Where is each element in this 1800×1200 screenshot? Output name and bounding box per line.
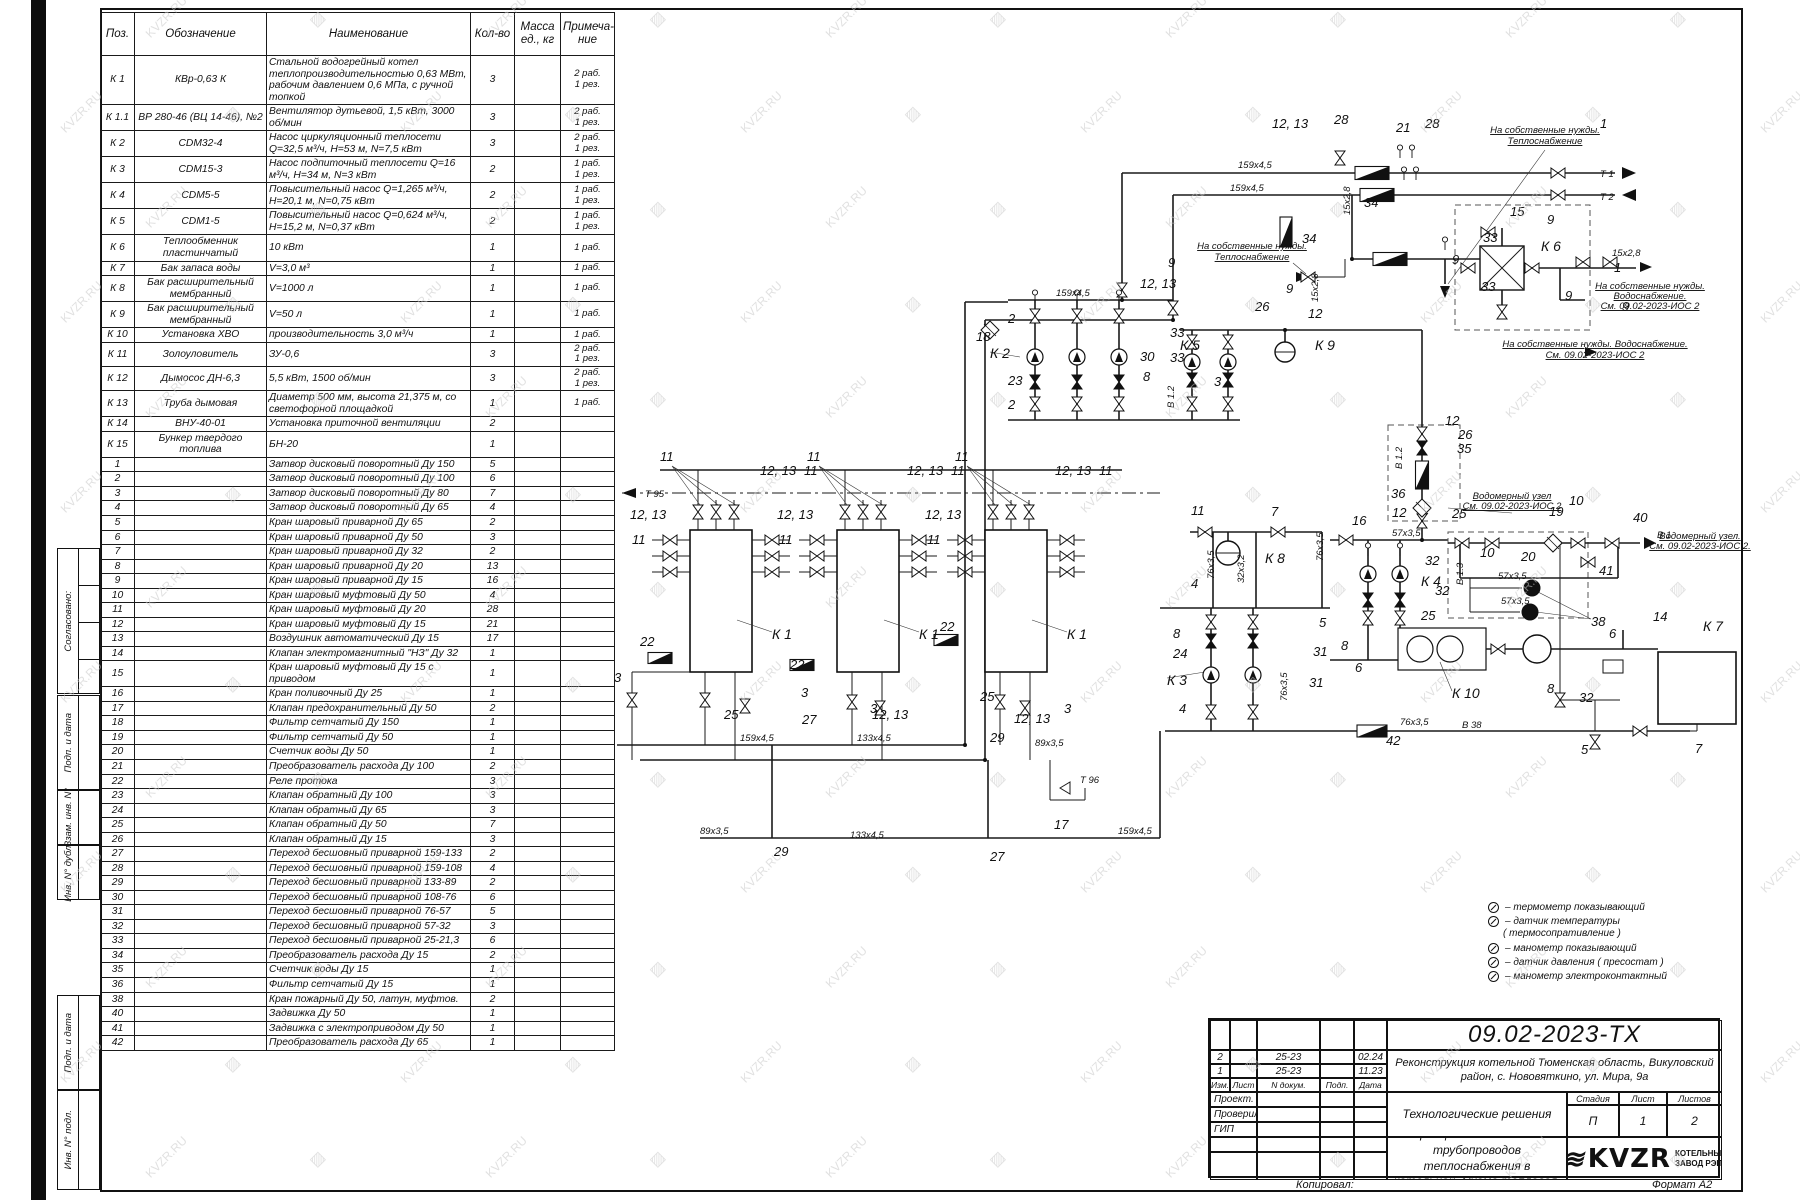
tb-hdr-list: Лист xyxy=(1230,1078,1257,1092)
valve-icon xyxy=(1491,644,1505,654)
flow-transducer-icon xyxy=(1357,725,1387,737)
flow-transducer-icon xyxy=(1416,461,1429,489)
schematic-label: 41 xyxy=(1599,563,1613,578)
schematic-label: 12, 13 xyxy=(760,463,797,478)
tb-rev1-date: 11.23 xyxy=(1354,1064,1387,1078)
tb-role-gip-name[interactable] xyxy=(1257,1122,1320,1137)
valve-icon xyxy=(1030,309,1040,323)
valve-icon xyxy=(1060,551,1074,561)
valve-icon xyxy=(810,551,824,561)
schematic-label: 12 xyxy=(1308,306,1323,321)
legend-item: – манометр показывающий xyxy=(1488,941,1667,955)
schematic-label: 8 xyxy=(1143,369,1151,384)
schematic-label: См. 09.02-2023-ИОС 2 xyxy=(1463,501,1563,512)
pump-icon xyxy=(1220,354,1236,370)
tb-role-project: Проект. xyxy=(1210,1092,1257,1107)
valve-icon xyxy=(1461,263,1475,273)
schematic-label: 7 xyxy=(1271,504,1279,519)
schematic-label: 27 xyxy=(989,849,1005,864)
schematic-label: К 8 xyxy=(1265,550,1285,566)
valve-icon xyxy=(1339,535,1353,545)
tb-role-checked-name[interactable] xyxy=(1257,1107,1320,1122)
schematic-label: Т 95 xyxy=(645,489,665,500)
air-vent-icon xyxy=(1365,543,1370,556)
schematic-label: 11 xyxy=(951,463,965,478)
schematic-label: 33 xyxy=(1483,230,1498,245)
water-tank-k7 xyxy=(1603,652,1736,724)
schematic-label: См. 09.02-2023-ИОС 2 xyxy=(1601,301,1701,312)
schematic-label: 33 xyxy=(1170,350,1185,365)
schematic-label: 12, 13 xyxy=(1055,463,1092,478)
schematic-label: 35 xyxy=(1457,441,1472,456)
schematic-label: 6 xyxy=(1355,660,1363,675)
schematic-label: К 1 xyxy=(919,626,939,642)
valve-icon xyxy=(1571,538,1585,548)
valve-icon xyxy=(663,567,677,577)
legend-text: – манометр электроконтактный xyxy=(1505,971,1667,982)
schematic-label: 25 xyxy=(1451,506,1467,521)
valve-icon xyxy=(663,551,677,561)
schematic-label: 15x2,8 xyxy=(1310,273,1321,302)
title-block: 2 25-23 02.24 1 25-23 11.23 Изм. Лист N … xyxy=(1208,1018,1720,1178)
electrocontact-manometer-icon xyxy=(1488,971,1499,982)
legend-item: – датчик температуры xyxy=(1488,914,1667,928)
tb-hdr-sign: Подп. xyxy=(1320,1078,1354,1092)
valve-icon xyxy=(1551,168,1565,178)
legend-item: – манометр электроконтактный xyxy=(1488,969,1667,983)
valve-icon xyxy=(1395,611,1405,625)
schematic-label: 24 xyxy=(1172,646,1187,661)
valve-icon xyxy=(912,551,926,561)
air-vent-icon xyxy=(1442,237,1447,250)
schematic-label: 25 xyxy=(979,689,995,704)
air-vent-icon xyxy=(1409,145,1414,158)
schematic-label: 33 xyxy=(1481,279,1496,294)
legend-text-wrap: ( термосопративление ) xyxy=(1503,928,1667,941)
valve-icon xyxy=(1363,593,1373,607)
schematic-label: 5 xyxy=(1319,615,1327,630)
tb-empty xyxy=(1210,1020,1230,1050)
schematic-label: 36 xyxy=(1391,486,1406,501)
tb-rev2-list xyxy=(1230,1050,1257,1064)
schematic-label: 57x3,5 xyxy=(1498,571,1527,582)
tb-sheets-label: Листов xyxy=(1667,1092,1722,1105)
tb-role-gip-sign[interactable] xyxy=(1320,1122,1354,1137)
schematic-label: Т 96 xyxy=(1080,775,1100,786)
schematic-label: 11 xyxy=(804,463,818,478)
schematic-label: 12, 13 xyxy=(777,507,814,522)
schematic-label: В 1.3 xyxy=(1455,562,1466,585)
schematic-label: 22 xyxy=(789,657,805,672)
kvzr-company-name: КОТЕЛЬНЫЙ ЗАВОД РЭП xyxy=(1675,1149,1722,1167)
boiler-k1-group xyxy=(690,530,1047,672)
valve-icon xyxy=(693,505,703,519)
format-label: Формат А2 xyxy=(1652,1179,1712,1191)
tb-doc-number: 09.02-2023-ТХ xyxy=(1387,1020,1722,1050)
valve-icon xyxy=(1455,538,1469,548)
tb-rev2-sign[interactable] xyxy=(1320,1050,1354,1064)
schematic-label: 8 xyxy=(1173,626,1181,641)
valve-icon xyxy=(1206,634,1216,648)
schematic-label: 12, 13 xyxy=(1014,711,1051,726)
valve-icon xyxy=(1168,301,1178,315)
schematic-label: 18 xyxy=(976,329,991,344)
schematic-label: 22 xyxy=(639,634,655,649)
valve-icon xyxy=(729,505,739,519)
schematic-label: 159x4,5 xyxy=(1238,160,1273,171)
schematic-label: 26 xyxy=(1254,299,1270,314)
valve-icon xyxy=(1114,397,1124,411)
tb-rev2-date: 02.24 xyxy=(1354,1050,1387,1064)
pump-icon xyxy=(1392,566,1408,582)
valve-icon xyxy=(1417,427,1427,441)
schematic-label: К 3 xyxy=(1167,672,1187,688)
air-vent-icon xyxy=(1397,543,1402,556)
valve-icon xyxy=(1114,375,1124,389)
water-treatment-k10 xyxy=(1398,628,1486,670)
tb-role-project-sign[interactable] xyxy=(1320,1092,1354,1107)
schematic-label: 10 xyxy=(1480,545,1495,560)
tb-empty xyxy=(1210,1152,1257,1180)
schematic-label: 11 xyxy=(807,449,821,464)
pressure-sensor-icon xyxy=(1488,957,1499,968)
schematic-label: Т 1 xyxy=(1600,169,1614,180)
tb-hdr-izm: Изм. xyxy=(1210,1078,1230,1092)
valve-icon xyxy=(912,567,926,577)
tb-hdr-doc: N докум. xyxy=(1257,1078,1320,1092)
valve-icon xyxy=(1223,397,1233,411)
schematic-label: 2 xyxy=(1007,311,1016,326)
schematic-label: 12, 13 xyxy=(925,507,962,522)
schematic-label: 23 xyxy=(1007,373,1023,388)
schematic-label: 17 xyxy=(1054,817,1069,832)
schematic-label: 34 xyxy=(1364,195,1378,210)
valve-icon xyxy=(1335,151,1345,165)
tb-empty xyxy=(1257,1020,1320,1050)
valve-icon xyxy=(1248,634,1258,648)
valve-icon xyxy=(988,505,998,519)
schematic-label: К 2 xyxy=(990,345,1010,361)
tb-company: ≋ KVZR КОТЕЛЬНЫЙ ЗАВОД РЭП xyxy=(1567,1137,1722,1180)
tb-sheet-label: Лист xyxy=(1619,1092,1667,1105)
valve-icon xyxy=(1072,397,1082,411)
schematic-label: На собственные нужды. xyxy=(1197,241,1307,252)
schematic-label: 12, 13 xyxy=(630,507,667,522)
legend-text: – датчик давления ( пресостат ) xyxy=(1505,957,1664,968)
schematic-label: 32 xyxy=(1579,690,1594,705)
tb-stage-label: Стадия xyxy=(1567,1092,1619,1105)
schematic-label: К 7 xyxy=(1703,618,1724,634)
tb-empty xyxy=(1354,1020,1387,1050)
strainer-icon xyxy=(1413,499,1431,517)
legend-item: – термометр показывающий xyxy=(1488,900,1667,914)
valve-icon xyxy=(1395,593,1405,607)
schematic-label: К 1 xyxy=(1067,626,1087,642)
schematic-label: 159x4,5 xyxy=(1056,288,1091,299)
thermometer-icon xyxy=(1488,902,1499,913)
tb-empty xyxy=(1320,1137,1354,1152)
tb-empty xyxy=(1320,1152,1354,1180)
schematic-label: 4 xyxy=(1191,576,1198,591)
valve-icon xyxy=(1187,397,1197,411)
legend-text: – манометр показывающий xyxy=(1505,943,1637,954)
pump-icon xyxy=(1184,354,1200,370)
tb-role-checked: Проверил xyxy=(1210,1107,1257,1122)
tb-empty xyxy=(1210,1137,1257,1152)
schematic-label: 3 xyxy=(801,685,809,700)
schematic-label: 76x3,5 xyxy=(1206,550,1217,579)
air-vent-icon xyxy=(1397,145,1402,158)
tb-object-text: Реконструкция котельной Тюменская област… xyxy=(1387,1050,1722,1092)
tb-empty xyxy=(1257,1137,1320,1152)
schematic-label: 8 xyxy=(1547,681,1555,696)
manometer-icon xyxy=(1488,943,1499,954)
schematic-label: 28 xyxy=(1333,112,1349,127)
expansion-tank-k9 xyxy=(1275,342,1295,362)
valve-icon xyxy=(1072,309,1082,323)
schematic-label: К 9 xyxy=(1315,337,1335,353)
schematic-label: 4 xyxy=(1179,701,1186,716)
pump-icon xyxy=(1360,566,1376,582)
valve-icon xyxy=(765,567,779,577)
schematic-label: 20 xyxy=(1520,549,1536,564)
schematic-label: 5 xyxy=(1581,742,1589,757)
valve-icon xyxy=(1223,373,1233,387)
valve-icon xyxy=(1633,726,1647,736)
tb-empty xyxy=(1230,1020,1257,1050)
pump-icon xyxy=(1069,349,1085,365)
schematic-label: 57x3,5 xyxy=(1501,596,1530,607)
schematic-label: 11 xyxy=(1191,503,1205,518)
pump-icon xyxy=(1203,667,1219,683)
schematic-label: 9 xyxy=(1168,255,1175,270)
schematic-label: 76x3,5 xyxy=(1400,717,1429,728)
tb-empty xyxy=(1320,1020,1354,1050)
temp-sensor-icon xyxy=(1488,916,1499,927)
schematic-label: 159x4,5 xyxy=(1118,826,1153,837)
air-vent-icon xyxy=(1032,290,1037,303)
schematic-label: К 10 xyxy=(1452,685,1480,701)
schematic-label: 57x3,5 xyxy=(1392,528,1421,539)
pump-icon xyxy=(1245,667,1261,683)
schematic-label: 9 xyxy=(1452,252,1459,267)
tb-rev1-doc: 25-23 xyxy=(1257,1064,1320,1078)
schematic-label: 42 xyxy=(1386,733,1401,748)
schematic-label: 3 xyxy=(1064,701,1072,716)
schematic-label: В 1.2 xyxy=(1394,446,1405,469)
valve-icon xyxy=(1206,705,1216,719)
valve-icon xyxy=(711,505,721,519)
tb-section-title: Технологические решения xyxy=(1387,1092,1567,1137)
schematic-label: 29 xyxy=(989,730,1004,745)
schematic-label: 11 xyxy=(632,532,646,547)
schematic-label: 12, 13 xyxy=(907,463,944,478)
tb-empty xyxy=(1354,1137,1387,1152)
valve-icon xyxy=(840,505,850,519)
schematic-label: 9 xyxy=(1565,288,1572,303)
schematic-label: Теплоснабжение xyxy=(1508,136,1583,147)
schematic-label: 1 xyxy=(1614,260,1621,275)
schematic-label: 12, 13 xyxy=(1140,276,1177,291)
valve-icon xyxy=(1248,705,1258,719)
drawing-sheet: Согласовано: Подп. и дата Взам. инв. N° … xyxy=(0,0,1800,1200)
schematic-label: Т 2 xyxy=(1600,192,1614,203)
schematic-label: 11 xyxy=(779,532,793,547)
pump-icon xyxy=(1524,580,1540,596)
schematic-label: На собственные нужды. xyxy=(1490,125,1600,136)
valve-icon xyxy=(1576,257,1590,267)
schematic-label: 15x2,8 xyxy=(1612,248,1641,259)
schematic-label: 12 xyxy=(1392,505,1407,520)
valve-icon xyxy=(1223,335,1233,349)
legend: – термометр показывающий– датчик темпера… xyxy=(1488,900,1667,983)
schematic-label: 11 xyxy=(1099,463,1113,478)
tb-rev2-doc: 25-23 xyxy=(1257,1050,1320,1064)
schematic-label: 19 xyxy=(1549,504,1563,519)
schematic-label: К 6 xyxy=(1541,238,1561,254)
schematic-label: 40 xyxy=(1633,510,1648,525)
valve-icon xyxy=(1198,527,1212,537)
schematic-label: Теплоснабжение xyxy=(1215,252,1290,263)
valve-icon xyxy=(663,535,677,545)
schematic-label: 32 xyxy=(1435,583,1450,598)
tb-rev1-list xyxy=(1230,1064,1257,1078)
schematic-label: 89x3,5 xyxy=(1035,738,1064,749)
tb-role-project-name[interactable] xyxy=(1257,1092,1320,1107)
schematic-label: 8 xyxy=(1341,638,1349,653)
schematic-label: 31 xyxy=(1309,675,1323,690)
valve-icon xyxy=(1030,375,1040,389)
kvzr-logo-icon: ≋ xyxy=(1567,1146,1584,1172)
schematic-label: 32 xyxy=(1425,553,1440,568)
schematic-label: 9 xyxy=(1547,212,1554,227)
schematic-label: 10 xyxy=(1569,493,1584,508)
schematic-label: 76x3,5 xyxy=(1279,672,1290,701)
valve-icon xyxy=(1497,305,1507,319)
valve-icon xyxy=(1114,309,1124,323)
schematic-label: 15x2,8 xyxy=(1342,186,1353,215)
valve-icon xyxy=(740,699,750,713)
valve-icon xyxy=(1030,397,1040,411)
schematic-label: 12 xyxy=(1445,413,1460,428)
schematic-label: 30 xyxy=(1140,349,1155,364)
schematic-label: 26 xyxy=(1457,427,1473,442)
valve-icon xyxy=(1590,735,1600,749)
schematic-label: 7 xyxy=(1695,741,1703,756)
pump-icon xyxy=(1027,349,1043,365)
valve-icon xyxy=(1605,538,1619,548)
pump-icon xyxy=(1111,349,1127,365)
schematic-label: 11 xyxy=(927,532,941,547)
schematic-label: 25 xyxy=(723,707,739,722)
schematic-label: 29 xyxy=(773,844,788,859)
schematic-label: 2 xyxy=(1007,397,1016,412)
valve-icon xyxy=(995,695,1005,709)
tb-drawing-title: Принципиальная схема трубопроводов тепло… xyxy=(1387,1137,1567,1180)
schematic-label: 133x4,5 xyxy=(850,830,885,841)
flow-transducer-icon xyxy=(648,653,672,664)
schematic-label: 22 xyxy=(939,619,955,634)
tb-role-gip-date[interactable] xyxy=(1354,1122,1387,1137)
valve-icon xyxy=(765,535,779,545)
valve-icon xyxy=(1024,505,1034,519)
valve-icon xyxy=(847,695,857,709)
schematic-label: 12, 13 xyxy=(1272,116,1309,131)
legend-item: – датчик давления ( пресостат ) xyxy=(1488,955,1667,969)
tb-rev2-izm: 2 xyxy=(1210,1050,1230,1064)
tb-role-checked-date[interactable] xyxy=(1354,1107,1387,1122)
valve-icon xyxy=(1072,375,1082,389)
schematic-label: 16 xyxy=(1352,513,1367,528)
valve-icon xyxy=(627,693,637,707)
valve-icon xyxy=(1525,263,1539,273)
schematic-label: 28 xyxy=(1424,116,1440,131)
schematic-label: 89x3,5 xyxy=(700,826,729,837)
valve-icon xyxy=(1206,615,1216,629)
valve-icon xyxy=(876,505,886,519)
schematic-label: 31 xyxy=(1313,644,1327,659)
flow-transducer-icon xyxy=(1355,167,1389,180)
schematic-label: 12, 13 xyxy=(872,707,909,722)
tb-role-checked-sign[interactable] xyxy=(1320,1107,1354,1122)
schematic-label: 27 xyxy=(801,712,817,727)
tb-sheet-value: 1 xyxy=(1619,1105,1667,1137)
tb-role-project-date[interactable] xyxy=(1354,1092,1387,1107)
copied-label: Копировал: xyxy=(1296,1179,1354,1191)
valve-icon xyxy=(1060,535,1074,545)
tb-role-gip: ГИП xyxy=(1210,1122,1257,1137)
tb-rev1-izm: 1 xyxy=(1210,1064,1230,1078)
valve-icon xyxy=(1248,615,1258,629)
valve-icon xyxy=(1417,441,1427,455)
schematic-label: 9 xyxy=(1286,281,1293,296)
tb-empty xyxy=(1354,1152,1387,1180)
valve-icon xyxy=(810,567,824,577)
schematic-label: 3 xyxy=(1214,374,1222,389)
tb-rev1-sign[interactable] xyxy=(1320,1064,1354,1078)
tb-stage-value: П xyxy=(1567,1105,1619,1137)
schematic-label: В 1.2 xyxy=(1166,385,1177,408)
schematic-label: На собственные нужды. Водоснабжение. xyxy=(1502,339,1687,350)
schematic-label: См. 09.02-2023-ИОС 2. xyxy=(1649,541,1751,552)
kvzr-logo-word: KVZR xyxy=(1588,1144,1671,1174)
schematic-label: 21 xyxy=(1395,120,1410,135)
valve-icon xyxy=(1006,505,1016,519)
valve-icon xyxy=(1271,527,1285,537)
schematic-label: В 38 xyxy=(1462,720,1482,731)
valve-icon xyxy=(858,505,868,519)
legend-text: – термометр показывающий xyxy=(1505,902,1645,913)
schematic-label: 159x4,5 xyxy=(1230,183,1265,194)
schematic-label: 133x4,5 xyxy=(857,733,892,744)
valve-icon xyxy=(810,535,824,545)
schematic-label: 76x3,5 xyxy=(1315,532,1326,561)
tb-hdr-date: Дата xyxy=(1354,1078,1387,1092)
valve-icon xyxy=(1187,373,1197,387)
schematic-label: 25 xyxy=(1420,608,1436,623)
valve-icon xyxy=(1363,611,1373,625)
legend-text: – датчик температуры xyxy=(1505,916,1620,927)
valve-icon xyxy=(1551,190,1565,200)
schematic-label: 11 xyxy=(660,449,674,464)
schematic-label: 11 xyxy=(955,449,969,464)
schematic-label: 6 xyxy=(1609,626,1617,641)
schematic-label: См. 09.02-2023-ИОС 2 xyxy=(1546,350,1646,361)
tb-empty xyxy=(1257,1152,1320,1180)
schematic-label: К 1 xyxy=(772,626,792,642)
schematic-label: 159x4,5 xyxy=(740,733,775,744)
schematic-label: 15 xyxy=(1510,204,1525,219)
